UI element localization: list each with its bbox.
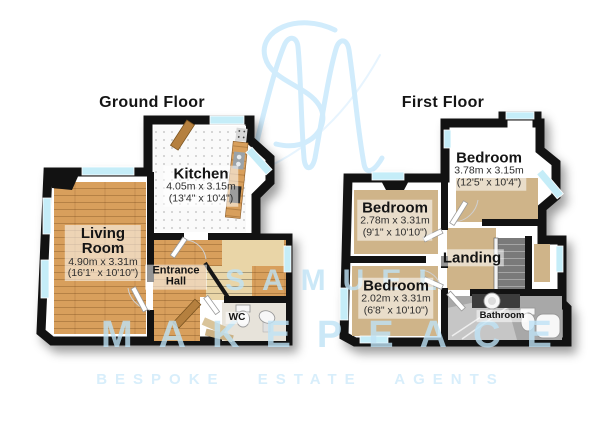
- window-icon: [556, 246, 563, 272]
- bathtub-icon: [536, 314, 560, 338]
- window-icon: [444, 130, 451, 148]
- window-icon: [43, 198, 51, 234]
- landing-wall: [441, 178, 448, 230]
- room-dimensions-imperial: (13'4" x 10'4"): [166, 194, 235, 206]
- landing-wall: [441, 288, 448, 342]
- window-icon: [82, 167, 134, 175]
- room-name: Kitchen: [166, 167, 235, 182]
- room-name: Bathroom: [480, 311, 525, 321]
- room-label-kitchen: Kitchen 4.05m x 3.15m (13'4" x 10'4"): [163, 166, 238, 207]
- window-icon: [506, 112, 534, 119]
- window-icon: [340, 288, 348, 320]
- room-label-wc: WC: [226, 312, 249, 324]
- room-name: Bedroom: [360, 201, 429, 216]
- window-icon: [41, 260, 49, 298]
- stairwell-wall: [525, 236, 532, 292]
- window-icon: [210, 116, 244, 124]
- landing-floor-strip: [534, 244, 550, 282]
- window-icon: [372, 172, 404, 180]
- room-dimensions-imperial: (9'1" x 10'10"): [360, 228, 429, 240]
- room-label-landing: Landing: [440, 249, 504, 266]
- bedroom-1-wall: [482, 219, 542, 226]
- window-icon: [360, 336, 388, 343]
- room-label-bathroom: Bathroom: [477, 310, 528, 322]
- sink-icon: [484, 293, 500, 309]
- room-name: Living Room: [70, 226, 136, 257]
- floorplan-image: SAMUEL MAKEPEACE BESPOKE ESTATE AGENTS G…: [0, 0, 601, 437]
- room-label-living-room: Living Room 4.90m x 3.31m (16'1" x 10'10…: [65, 225, 141, 281]
- wc-wall: [224, 296, 288, 303]
- room-label-bedroom-2: Bedroom 2.78m x 3.31m (9'1" x 10'10"): [357, 200, 432, 241]
- room-dimensions-imperial: (16'1" x 10'10"): [68, 268, 138, 280]
- room-name: Landing: [443, 250, 501, 265]
- stove-icon: [235, 128, 247, 142]
- window-icon: [284, 246, 291, 272]
- ground-floor-title: Ground Floor: [99, 94, 205, 112]
- room-name: Entrance Hall: [148, 266, 204, 289]
- room-label-bedroom-1: Bedroom 3.78m x 3.15m (12'5" x 10'4"): [451, 150, 526, 191]
- bedroom-divider-wall: [344, 256, 426, 263]
- living-hall-wall: [147, 310, 154, 341]
- first-floor-title: First Floor: [402, 94, 484, 112]
- room-label-bedroom-3: Bedroom 2.02m x 3.31m (6'8" x 10'10"): [358, 278, 433, 319]
- room-dimensions-imperial: (6'8" x 10'10"): [361, 306, 430, 318]
- room-name: Bedroom: [361, 279, 430, 294]
- room-name: WC: [229, 313, 246, 323]
- kitchen-hall-wall: [208, 233, 256, 240]
- floor-plans-drawing: [0, 0, 601, 437]
- room-dimensions-imperial: (12'5" x 10'4"): [454, 178, 523, 190]
- room-name: Bedroom: [454, 151, 523, 166]
- room-label-entrance-hall: Entrance Hall: [145, 265, 207, 290]
